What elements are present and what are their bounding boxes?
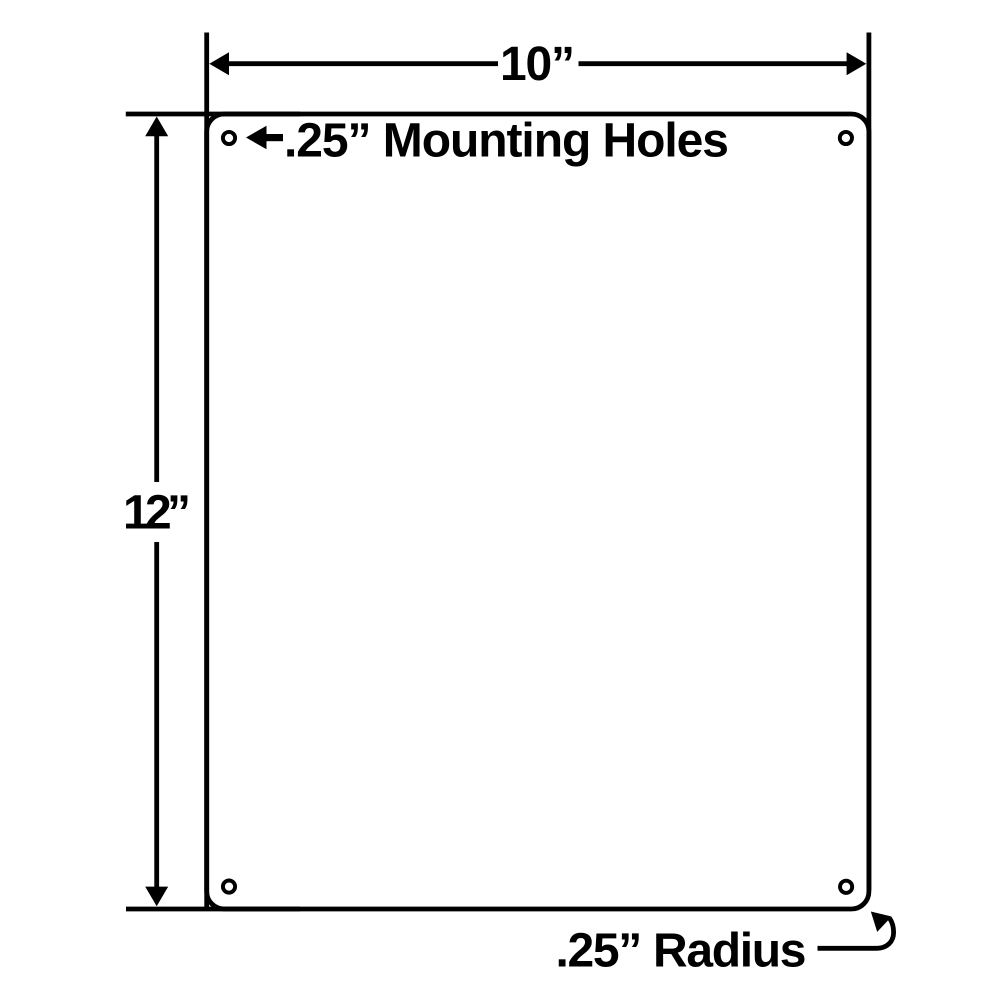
- svg-text:12”: 12”: [123, 487, 191, 540]
- svg-text:.25” Mounting Holes: .25” Mounting Holes: [284, 115, 729, 168]
- svg-text:10”: 10”: [500, 38, 575, 91]
- svg-text:.25” Radius: .25” Radius: [556, 925, 807, 978]
